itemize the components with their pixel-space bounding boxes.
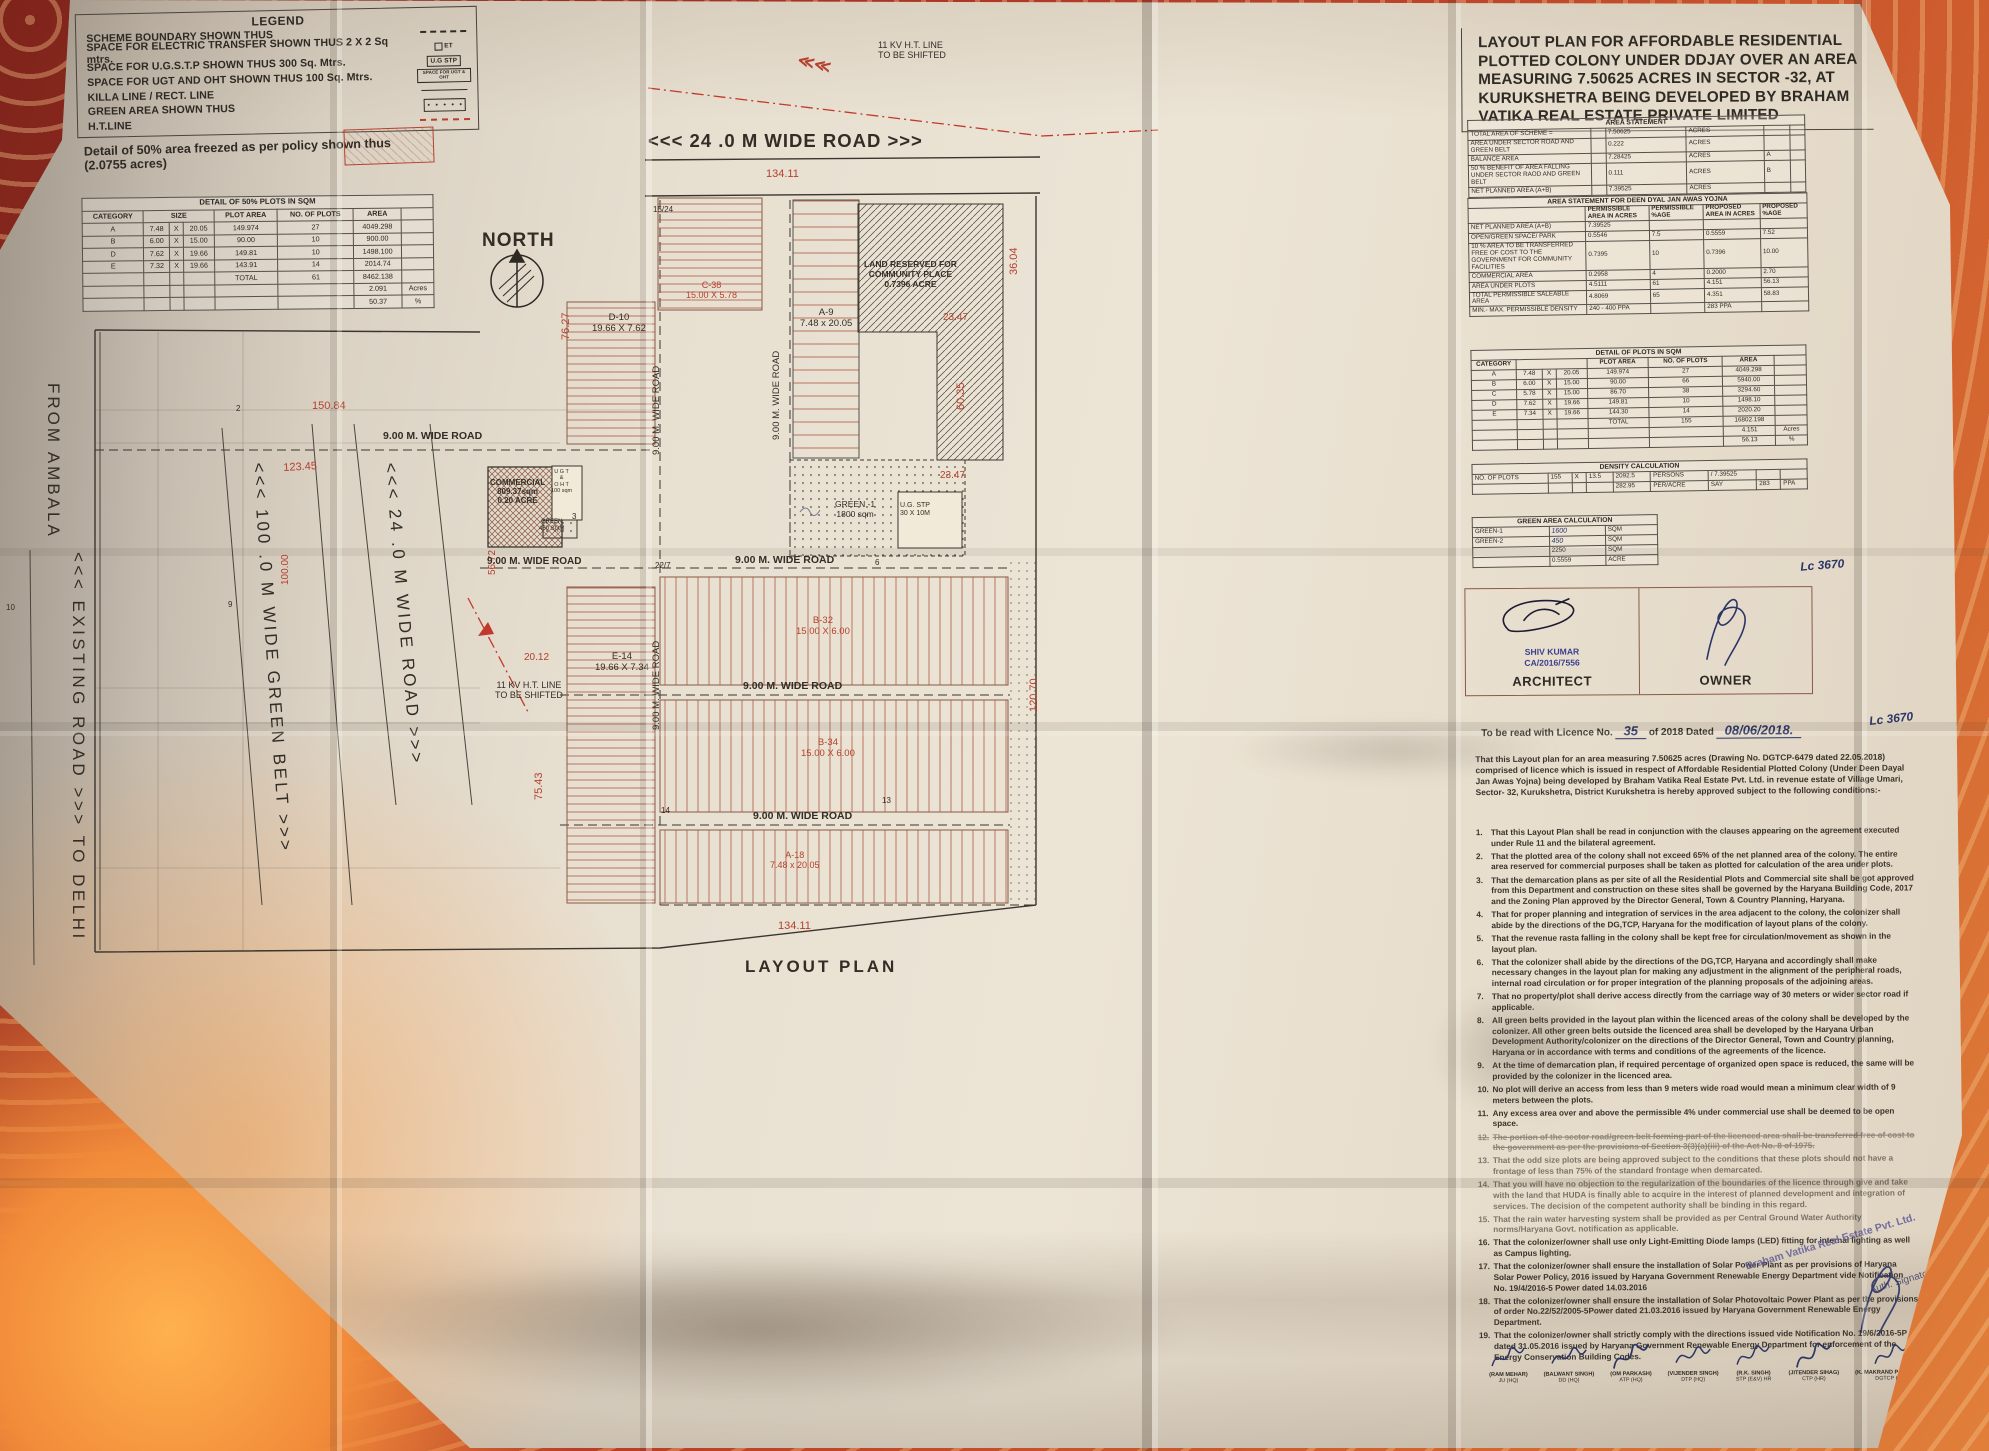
owner-signature: [1694, 589, 1765, 673]
owner-label: OWNER: [1639, 672, 1812, 688]
green-area-table: GREEN AREA CALCULATIONGREEN-11600SQMGREE…: [1472, 514, 1659, 568]
licence-line: To be read with Licence No. 35 of 2018 D…: [1481, 722, 1801, 739]
licence-mid: of 2018 Dated: [1649, 727, 1714, 738]
ddjay-area-statement-table: AREA STATEMENT FOR DEEN DYAL JAN AWAS YO…: [1467, 192, 1809, 317]
signatory-role: CTP (HR): [1789, 1376, 1840, 1382]
signatory-role: ATP (HQ): [1610, 1377, 1652, 1383]
lc-number-note-1: Lc 3670: [1800, 556, 1845, 573]
condition-item: 8.All green belts provided in the layout…: [1477, 1013, 1917, 1058]
architect-label: ARCHITECT: [1466, 673, 1639, 689]
condition-item: 13.That the odd size plots are being app…: [1478, 1154, 1918, 1178]
signature-scribble: [1672, 1338, 1714, 1373]
paper-sheet: LEGEND SCHEME BOUNDARY SHOWN THUSSPACE F…: [0, 0, 1989, 1451]
condition-item: 14.That you will have no objection to th…: [1478, 1178, 1918, 1213]
signatory-role: JU (HQ): [1489, 1378, 1528, 1384]
stamp-signature: [1844, 1252, 1915, 1342]
signatory-role: STP (E&V) HR: [1735, 1376, 1773, 1382]
signatory-role: DD (HQ): [1544, 1377, 1595, 1383]
signatory: (BALWANT SINGH)DD (HQ): [1543, 1341, 1594, 1383]
condition-item: 4.That for proper planning and integrati…: [1476, 908, 1916, 932]
signature-scribble: [1790, 1336, 1837, 1375]
signatory: (OM PARKASH)ATP (HQ): [1610, 1341, 1652, 1383]
lc-number-note-2: Lc 3670: [1869, 709, 1914, 728]
signatory-role: DTP (HQ): [1668, 1377, 1719, 1383]
condition-item: 5.That the revenue rasta falling in the …: [1476, 931, 1916, 955]
condition-item: 1.That this Layout Plan shall be read in…: [1476, 825, 1916, 849]
signature-scribble: [1548, 1339, 1590, 1374]
official-signatories: (RAM MEHAR)JU (HQ)(BALWANT SINGH)DD (HQ)…: [1489, 1339, 1927, 1384]
signature-scribble: [1734, 1340, 1772, 1370]
condition-item: 6.That the colonizer shall abide by the …: [1477, 955, 1917, 990]
architect-stamp: SHIV KUMARCA/2016/7556: [1524, 646, 1580, 669]
plots-detail-table: DETAIL OF PLOTS IN SQMCATEGORYPLOT AREAN…: [1470, 344, 1808, 451]
licence-prefix: To be read with Licence No.: [1481, 727, 1613, 739]
licence-intro-paragraph: That this Layout plan for an area measur…: [1475, 752, 1909, 799]
signatory: (JITENDER SIHAG)CTP (HR): [1788, 1340, 1839, 1382]
condition-item: 10.No plot will derive an access from le…: [1477, 1082, 1917, 1106]
signatory: (VIJENDER SINGH)DTP (HQ): [1667, 1341, 1718, 1383]
condition-item: 3.That the demarcation plans as per site…: [1476, 873, 1916, 908]
condition-item: 12.The portion of the sector road/green …: [1478, 1130, 1918, 1154]
signature-scribble: [1607, 1337, 1654, 1376]
layout-plan-photo: LEGEND SCHEME BOUNDARY SHOWN THUSSPACE F…: [0, 0, 1989, 1451]
density-calculation-table: DENSITY CALCULATIONNO. OF PLOTS155X13.52…: [1471, 458, 1807, 495]
condition-item: 2.That the plotted area of the colony sh…: [1476, 849, 1916, 873]
signature-scribble: [1489, 1342, 1527, 1372]
signature-block: SHIV KUMARCA/2016/7556 ARCHITECT OWNER: [1464, 586, 1813, 696]
licence-date-handwritten: 08/06/2018.: [1717, 722, 1802, 739]
right-panel: LAYOUT PLAN FOR AFFORDABLE RESIDENTIAL P…: [0, 0, 1989, 1451]
owner-cell: OWNER: [1639, 587, 1812, 694]
architect-signature: [1495, 594, 1605, 641]
licence-number-handwritten: 35: [1615, 723, 1646, 739]
drawing-title: LAYOUT PLAN FOR AFFORDABLE RESIDENTIAL P…: [1478, 32, 1870, 127]
condition-item: 11.Any excess area over and above the pe…: [1478, 1106, 1918, 1130]
architect-cell: SHIV KUMARCA/2016/7556 ARCHITECT: [1465, 588, 1639, 695]
signatory: (RAM MEHAR)JU (HQ): [1489, 1342, 1528, 1384]
area-statement-table: AREA STATEMENTTOTAL AREA OF SCHEME =7.50…: [1467, 114, 1806, 197]
condition-item: 9.At the time of demarcation plan, if re…: [1477, 1059, 1917, 1083]
signatory: (R.K. SINGH)STP (E&V) HR: [1734, 1340, 1772, 1382]
condition-item: 7.That no property/plot shall derive acc…: [1477, 990, 1917, 1014]
table-row: 0.5559ACRE: [1473, 555, 1658, 568]
